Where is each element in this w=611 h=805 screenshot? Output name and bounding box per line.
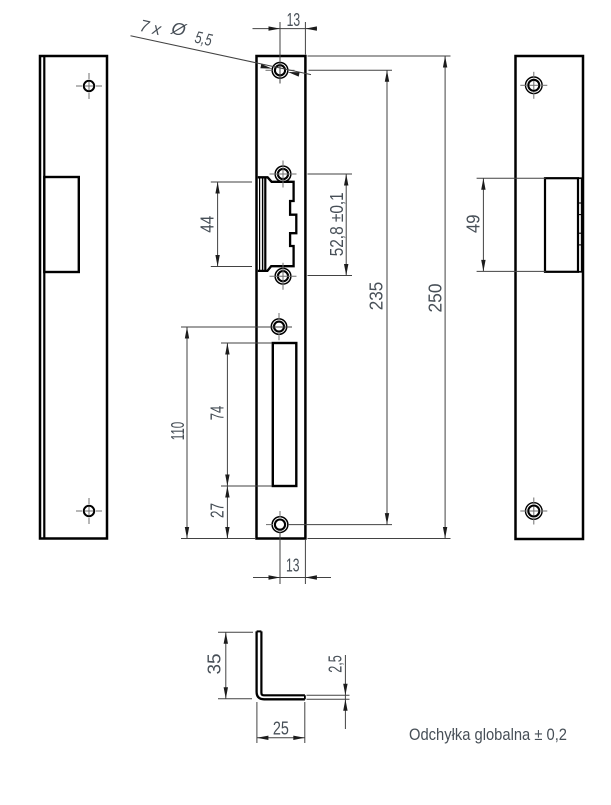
svg-text:49: 49 [463, 214, 484, 233]
svg-text:74: 74 [206, 406, 227, 421]
svg-text:25: 25 [273, 718, 289, 739]
svg-text:52,8 ±0,1: 52,8 ±0,1 [326, 192, 347, 256]
svg-text:2,5: 2,5 [325, 655, 346, 673]
svg-text:27: 27 [206, 503, 227, 518]
svg-text:13: 13 [287, 9, 301, 30]
svg-text:250: 250 [424, 284, 445, 313]
svg-text:35: 35 [204, 654, 225, 675]
svg-text:44: 44 [197, 216, 218, 233]
svg-text:13: 13 [286, 555, 300, 576]
svg-text:235: 235 [366, 282, 387, 311]
svg-text:110: 110 [167, 422, 188, 441]
svg-text:Odchyłka globalna ± 0,2: Odchyłka globalna ± 0,2 [409, 725, 567, 744]
